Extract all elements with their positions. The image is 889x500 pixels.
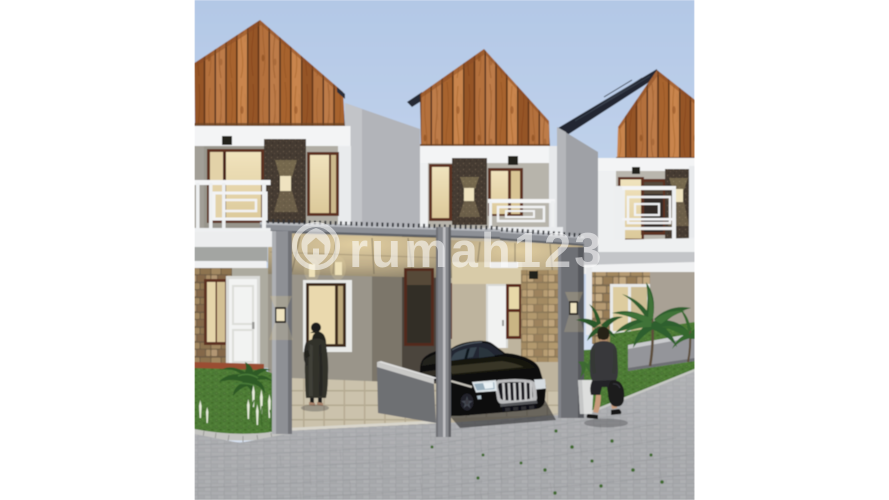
svg-text:rumah123: rumah123 <box>349 224 605 278</box>
